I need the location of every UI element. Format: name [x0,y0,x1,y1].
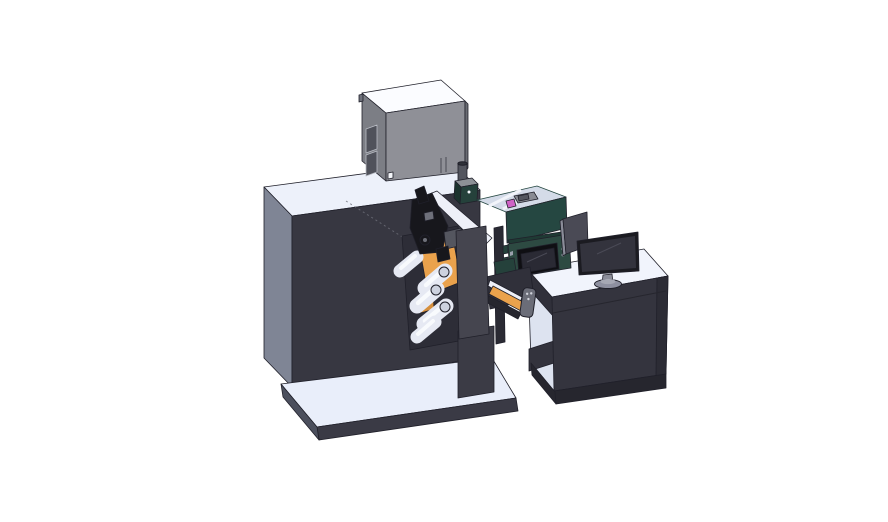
green-box-dot [468,191,471,194]
box-window-lower [366,151,377,176]
cad-scene [0,0,888,522]
cylinder-cap [458,162,467,166]
print-head-detail [424,211,434,221]
print-head-lens-inner [423,238,427,242]
roller-3-cap [431,285,441,295]
box-sticker [388,172,393,179]
monitor-base-top [601,279,616,284]
pink-component [506,199,516,208]
green-box-front [460,184,478,204]
front-cover-plate [456,226,489,339]
roller-2-cap [439,267,449,277]
roller-4-cap [440,302,450,312]
box-window-upper [366,125,377,153]
head-foot [436,246,450,262]
machine-left-face [264,187,292,387]
box-right-edge [465,101,468,172]
desk-right-edge [656,276,668,376]
box-hinge [359,94,363,102]
hmi-mount-tab-1 [503,245,508,254]
cad-render-viewport: 3D CAD render of a roll-fed label printi… [0,0,888,522]
box-front-face [386,101,465,181]
